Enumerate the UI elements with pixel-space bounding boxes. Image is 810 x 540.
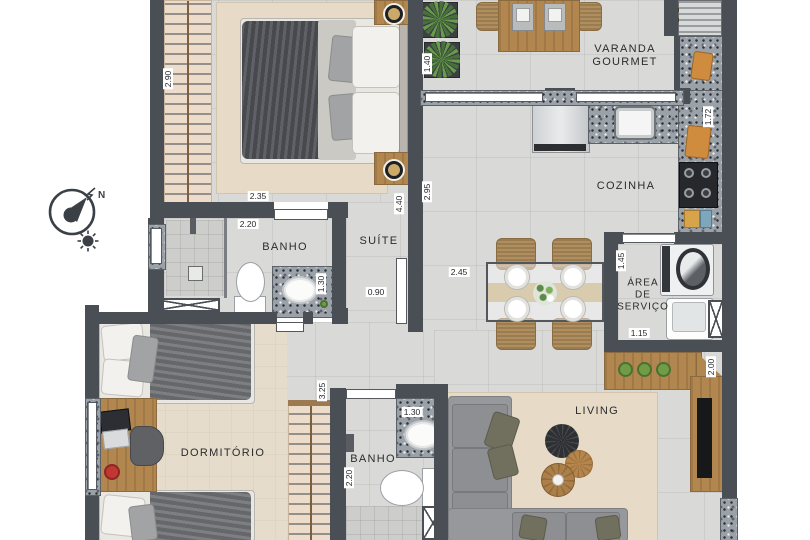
varanda-label-line1: VARANDA bbox=[594, 43, 655, 55]
suite-door bbox=[396, 258, 407, 324]
banho-suite-plant-icon bbox=[320, 300, 328, 308]
compass-icon: N bbox=[42, 184, 112, 258]
utensil-tray-2 bbox=[700, 210, 712, 228]
banho-suite-door bbox=[274, 209, 328, 220]
dim-cozinha-wall: 2.95 bbox=[422, 182, 432, 203]
dining-plate-4 bbox=[560, 296, 586, 322]
compass-north-label: N bbox=[98, 190, 105, 201]
wall-suite-left bbox=[150, 0, 164, 218]
desk-chair bbox=[130, 426, 164, 466]
dim-banho-suite-width: 2.20 bbox=[238, 219, 259, 229]
dim-servico-width: 1.15 bbox=[629, 328, 650, 338]
wall-hall-stub bbox=[332, 308, 348, 324]
laptop-keyboard bbox=[102, 428, 130, 449]
suite-pillow-top bbox=[352, 26, 400, 88]
dim-cozinha-counter: 1.72 bbox=[703, 107, 713, 128]
floor-plan: VARANDA GOURMET COZINHA ÁREA DE SERVIÇO … bbox=[0, 0, 810, 540]
cutting-board-kitchen bbox=[684, 125, 711, 159]
varanda-window-b bbox=[576, 92, 676, 102]
banho-suite-window bbox=[150, 228, 162, 264]
burner-icon-1 bbox=[684, 168, 694, 178]
dim-suite-closet: 2.90 bbox=[163, 69, 173, 90]
kitchen-sink bbox=[614, 106, 656, 140]
banho-suite-label: BANHO bbox=[262, 241, 308, 253]
wall-servico-bottom bbox=[604, 340, 724, 352]
bar-plant-icon-1 bbox=[618, 362, 633, 377]
washer-drum bbox=[676, 248, 710, 290]
wall-servico-top-b bbox=[674, 232, 737, 244]
dim-suite-depth: 4.40 bbox=[394, 194, 404, 215]
dorm-bed-top-blanket bbox=[150, 320, 251, 400]
wall-suite-right bbox=[408, 0, 423, 332]
wall-suite-banho-a bbox=[150, 202, 274, 218]
cozinha-label: COZINHA bbox=[597, 180, 656, 192]
coffee-table-cup bbox=[552, 474, 564, 486]
banho-social-label: BANHO bbox=[350, 453, 396, 465]
table-flowers-icon bbox=[533, 281, 557, 305]
dim-suite-door: 0.90 bbox=[366, 287, 387, 297]
wall-banho-suite-right bbox=[332, 202, 346, 322]
lamp-icon-top bbox=[385, 5, 403, 23]
servico-label-line2: DE bbox=[635, 290, 651, 301]
dining-plate-3 bbox=[504, 296, 530, 322]
dim-hall-closet: 3.25 bbox=[317, 381, 327, 402]
varanda-plate-1 bbox=[516, 8, 530, 22]
dim-varanda-depth: 1.40 bbox=[422, 54, 432, 75]
churrasqueira-grill bbox=[678, 0, 722, 36]
wall-outer-right bbox=[722, 0, 737, 498]
shower-suite-drain bbox=[188, 266, 203, 281]
banho-social-door bbox=[346, 389, 396, 399]
wall-dorm-left-a bbox=[85, 305, 99, 398]
shower-suite-glass bbox=[224, 218, 227, 298]
dining-chair-4 bbox=[552, 318, 592, 350]
dim-banho-social-counter: 1.30 bbox=[402, 407, 423, 417]
dim-banho-social-width: 2.20 bbox=[344, 468, 354, 489]
banho-suite-sink bbox=[282, 276, 318, 304]
wall-dorm-top-b bbox=[303, 312, 313, 324]
tv-screen bbox=[697, 398, 712, 478]
sofa-pillow-4 bbox=[594, 514, 621, 540]
burner-icon-4 bbox=[701, 188, 711, 198]
wall-dorm-top bbox=[87, 312, 277, 324]
utensil-tray-1 bbox=[684, 210, 700, 228]
dim-tv-panel: 2.00 bbox=[706, 357, 716, 378]
burner-icon-3 bbox=[684, 188, 694, 198]
toilet-social-bowl bbox=[380, 470, 424, 506]
wall-varanda-counter-divider bbox=[674, 36, 680, 90]
cutting-board-varanda bbox=[690, 51, 714, 82]
bar-plant-icon-3 bbox=[656, 362, 671, 377]
toilet-suite-bowl bbox=[236, 262, 265, 302]
dim-banho-suite-counter: 1.30 bbox=[316, 274, 326, 295]
shower-social-area bbox=[346, 506, 434, 540]
suite-label: SUÍTE bbox=[360, 235, 399, 247]
wall-banho-social-right bbox=[434, 384, 448, 540]
sun-icon bbox=[78, 231, 99, 252]
wall-grill-stub bbox=[664, 0, 678, 36]
servico-label-line3: SERVIÇO bbox=[617, 302, 669, 313]
dim-dining-width: 2.45 bbox=[449, 267, 470, 277]
servico-pass-window bbox=[622, 233, 676, 243]
lamp-icon-bottom bbox=[385, 161, 403, 179]
washer-panel bbox=[662, 246, 670, 292]
laundry-tank-basin bbox=[672, 302, 706, 332]
sofa-pillow-3 bbox=[518, 514, 548, 540]
shower-social-head bbox=[346, 434, 354, 452]
dim-servico-depth: 1.45 bbox=[616, 251, 626, 272]
suite-closet bbox=[164, 0, 212, 208]
wall-banho-social-left bbox=[330, 388, 346, 540]
desk-flower-red bbox=[104, 464, 120, 480]
dorm-window bbox=[87, 402, 97, 490]
bar-plant-icon-2 bbox=[637, 362, 652, 377]
suite-bed-blanket bbox=[242, 21, 330, 159]
burner-icon-2 bbox=[701, 168, 711, 178]
dorm-bed-bottom-pillow-2 bbox=[128, 504, 158, 540]
dormitorio-label: DORMITÓRIO bbox=[181, 447, 266, 459]
hall-wardrobe bbox=[288, 400, 334, 540]
dining-plate-1 bbox=[504, 264, 530, 290]
varanda-plate-2 bbox=[548, 8, 562, 22]
wall-banho-social-top bbox=[396, 384, 436, 398]
dorm-bed-bottom-blanket bbox=[150, 492, 251, 540]
servico-label-line1: ÁREA bbox=[627, 278, 658, 289]
living-window-sill bbox=[720, 498, 738, 540]
suite-pillow-bottom bbox=[352, 92, 400, 154]
dining-chair-3 bbox=[496, 318, 536, 350]
varanda-plant-1-icon bbox=[421, 1, 458, 38]
shower-suite-head bbox=[190, 218, 196, 234]
dining-plate-2 bbox=[560, 264, 586, 290]
dim-suite-bed: 2.35 bbox=[248, 191, 269, 201]
living-label: LIVING bbox=[575, 405, 619, 417]
varanda-window-a bbox=[425, 92, 543, 102]
wall-servico-left bbox=[604, 232, 618, 350]
fridge-vent bbox=[534, 144, 586, 151]
suite-headboard bbox=[399, 16, 408, 166]
dormitorio-door bbox=[276, 322, 304, 332]
varanda-table bbox=[498, 0, 580, 52]
cooktop bbox=[679, 162, 718, 208]
shaft-box bbox=[156, 298, 220, 312]
wall-dorm-left-b bbox=[85, 494, 99, 540]
varanda-label-line2: GOURMET bbox=[592, 56, 657, 68]
